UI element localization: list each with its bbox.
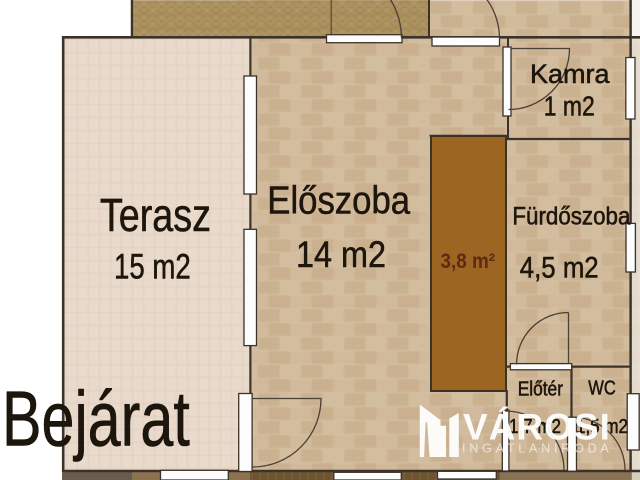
svg-text:WC: WC [588,376,615,399]
svg-text:1 m2: 1 m2 [544,91,595,122]
svg-text:14 m2: 14 m2 [296,235,386,275]
svg-text:4,5 m2: 4,5 m2 [520,250,599,283]
svg-text:Fürdőszoba: Fürdőszoba [512,203,631,230]
svg-text:Kamra: Kamra [530,59,611,89]
svg-text:Bejárat: Bejárat [2,375,190,463]
svg-text:Előtér: Előtér [518,377,563,399]
svg-text:Terasz: Terasz [100,189,211,240]
svg-text:Előszoba: Előszoba [267,179,410,222]
svg-text:INGATLANIRODA: INGATLANIRODA [462,442,613,456]
svg-text:3,8 m²: 3,8 m² [441,250,496,273]
svg-text:15 m2: 15 m2 [114,246,191,286]
